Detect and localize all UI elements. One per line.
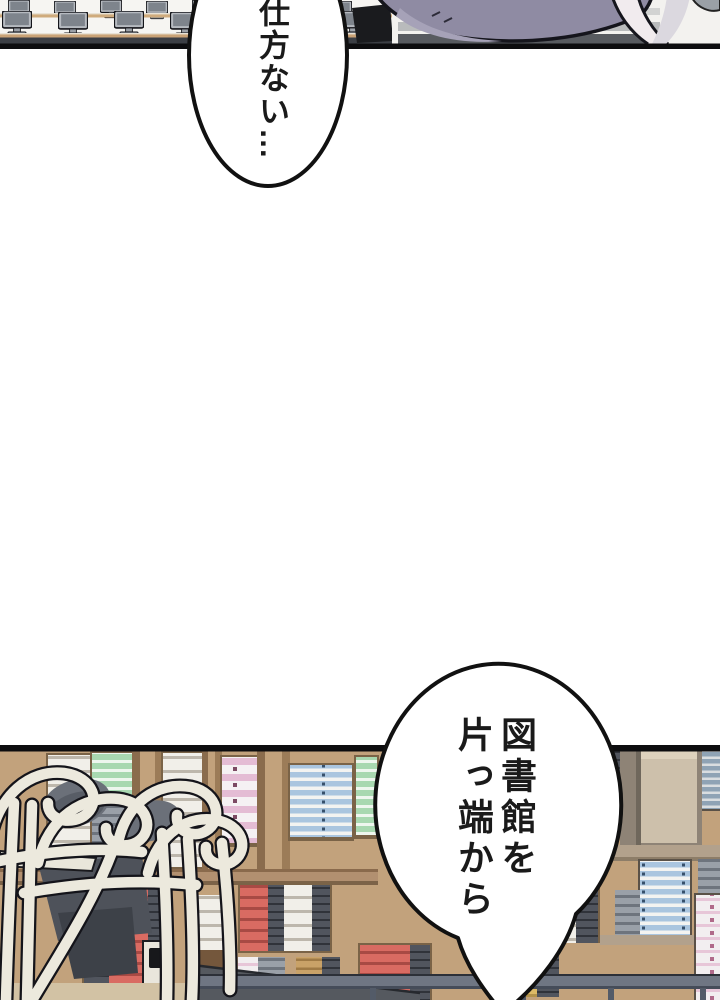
speech-bubble-2-text: 図書館を 片っ端から: [446, 716, 538, 946]
laptop-silhouette: [352, 4, 393, 43]
speech-bubble-1-text: 仕方ない…: [244, 0, 288, 186]
speech-bubble-2-line-2: 片っ端から: [452, 716, 495, 946]
manga-page: 仕方ない… 図書館を 片っ端から: [0, 0, 720, 1000]
classroom-illustration: [0, 0, 720, 49]
speech-bubble-2-line-1: 図書館を: [495, 716, 538, 946]
manga-artwork: [0, 0, 720, 1000]
panel-border-top: [0, 44, 720, 50]
